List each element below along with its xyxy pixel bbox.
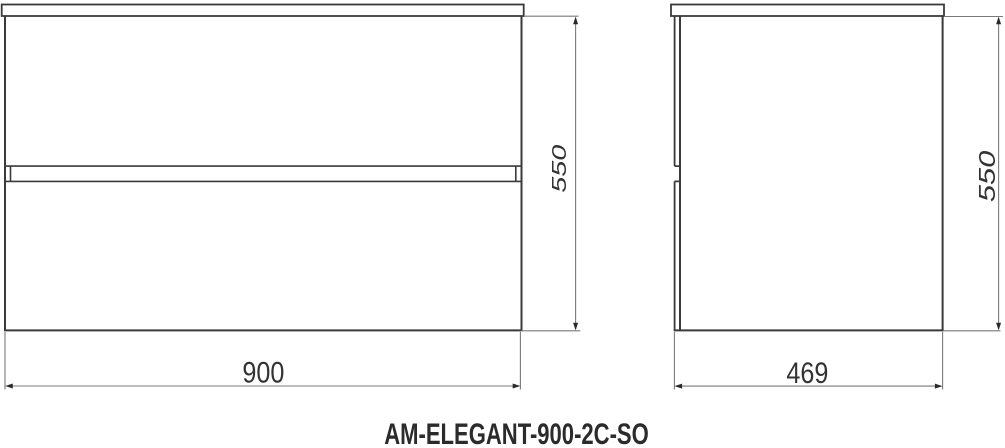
svg-text:900: 900 [242, 356, 284, 389]
svg-text:550: 550 [974, 150, 1000, 202]
svg-text:550: 550 [549, 145, 571, 193]
svg-text:469: 469 [786, 357, 828, 390]
svg-text:AM-ELEGANT-900-2C-SO: AM-ELEGANT-900-2C-SO [384, 418, 649, 448]
